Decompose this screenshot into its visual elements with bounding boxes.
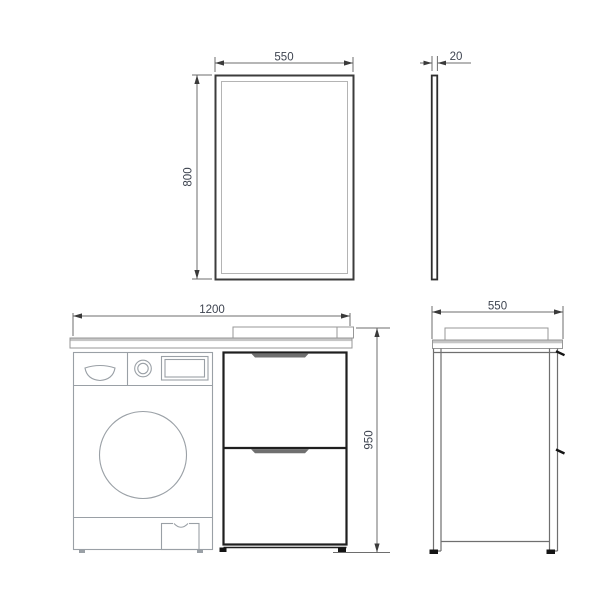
dim-label-mirror-thickness: 20 xyxy=(450,51,463,63)
basin-rim xyxy=(233,327,354,338)
mirror-side-view: 20 xyxy=(420,51,471,280)
dim-label-vanity-height: 950 xyxy=(364,430,376,449)
vanity-front-view: 1200 950 xyxy=(70,304,390,553)
cabinet-foot-right xyxy=(338,548,346,553)
washing-machine xyxy=(74,353,213,554)
washer-foot-left xyxy=(79,550,85,554)
basin-rim-side xyxy=(445,328,548,340)
arrow-down-icon xyxy=(374,544,379,553)
dim-mirror-thickness: 20 xyxy=(420,51,471,71)
countertop-edge-band xyxy=(71,339,352,342)
drawer-cabinet xyxy=(220,353,347,553)
arrow-up-icon xyxy=(374,328,379,337)
dim-label-mirror-height: 800 xyxy=(183,167,195,186)
countertop-side-band xyxy=(433,341,562,344)
arrow-left-icon xyxy=(432,309,441,314)
side-foot-back xyxy=(547,550,556,555)
vanity-side-view: 550 xyxy=(430,301,565,555)
arrow-right-icon xyxy=(554,309,563,314)
dim-label-vanity-width: 1200 xyxy=(199,304,225,316)
dim-label-mirror-width: 550 xyxy=(274,52,293,64)
arrow-left-icon xyxy=(73,313,82,318)
side-foot-front xyxy=(430,550,439,555)
dimension-drawing: 550 800 20 xyxy=(0,0,600,600)
drawer-handle-bottom xyxy=(251,449,309,453)
arrow-left-icon xyxy=(215,60,224,65)
dim-label-vanity-depth: 550 xyxy=(488,301,507,313)
mirror-front-view: 550 800 xyxy=(183,52,354,280)
arrow-down-icon xyxy=(194,270,199,279)
dim-mirror-width: 550 xyxy=(215,52,353,73)
mirror-frame xyxy=(216,76,354,280)
cabinet-foot-left xyxy=(220,548,227,553)
arrow-right-icon xyxy=(341,313,350,318)
extension-lines xyxy=(192,75,212,279)
technical-drawing-canvas: 550 800 20 xyxy=(0,0,600,600)
drawer-handle-top xyxy=(251,353,309,357)
dim-mirror-height: 800 xyxy=(183,75,213,279)
washer-foot-right xyxy=(197,550,203,554)
cabinet-side-body xyxy=(430,349,565,555)
washing-machine-body xyxy=(74,353,213,550)
mirror-side-slab xyxy=(432,76,438,280)
arrow-up-icon xyxy=(194,75,199,84)
extension-lines xyxy=(432,56,437,71)
arrow-right-icon xyxy=(344,60,353,65)
side-panel-front xyxy=(434,349,442,552)
arrow-left-icon xyxy=(438,61,447,66)
arrow-right-icon xyxy=(424,61,433,66)
